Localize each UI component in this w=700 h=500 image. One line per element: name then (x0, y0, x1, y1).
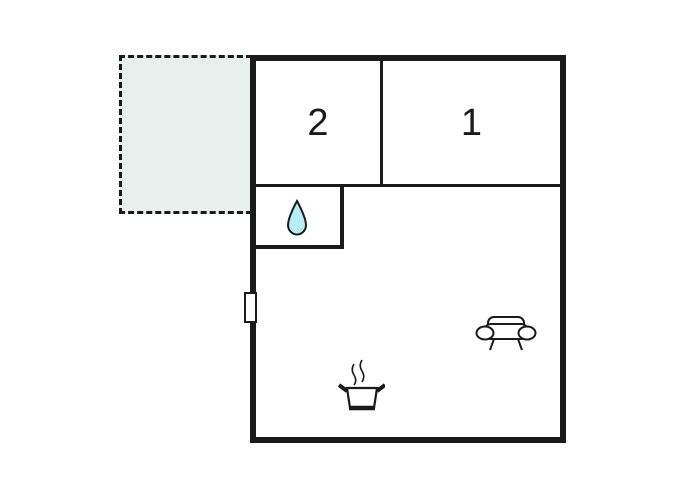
wall-bathroom-right (340, 185, 344, 249)
water-drop-icon (285, 199, 309, 236)
cooking-pot-icon (337, 357, 385, 411)
room-1-label: 1 (461, 104, 482, 142)
room-2-label: 2 (307, 104, 328, 142)
wall-bathroom-bottom (253, 245, 344, 249)
wall-divider-horizontal (253, 184, 563, 187)
window-marker (244, 292, 257, 323)
terrace-area (119, 55, 252, 214)
room-1: 1 (383, 61, 560, 184)
room-2: 2 (256, 61, 380, 184)
floor-plan-canvas: 2 1 (0, 0, 700, 500)
sofa-icon (475, 315, 537, 352)
